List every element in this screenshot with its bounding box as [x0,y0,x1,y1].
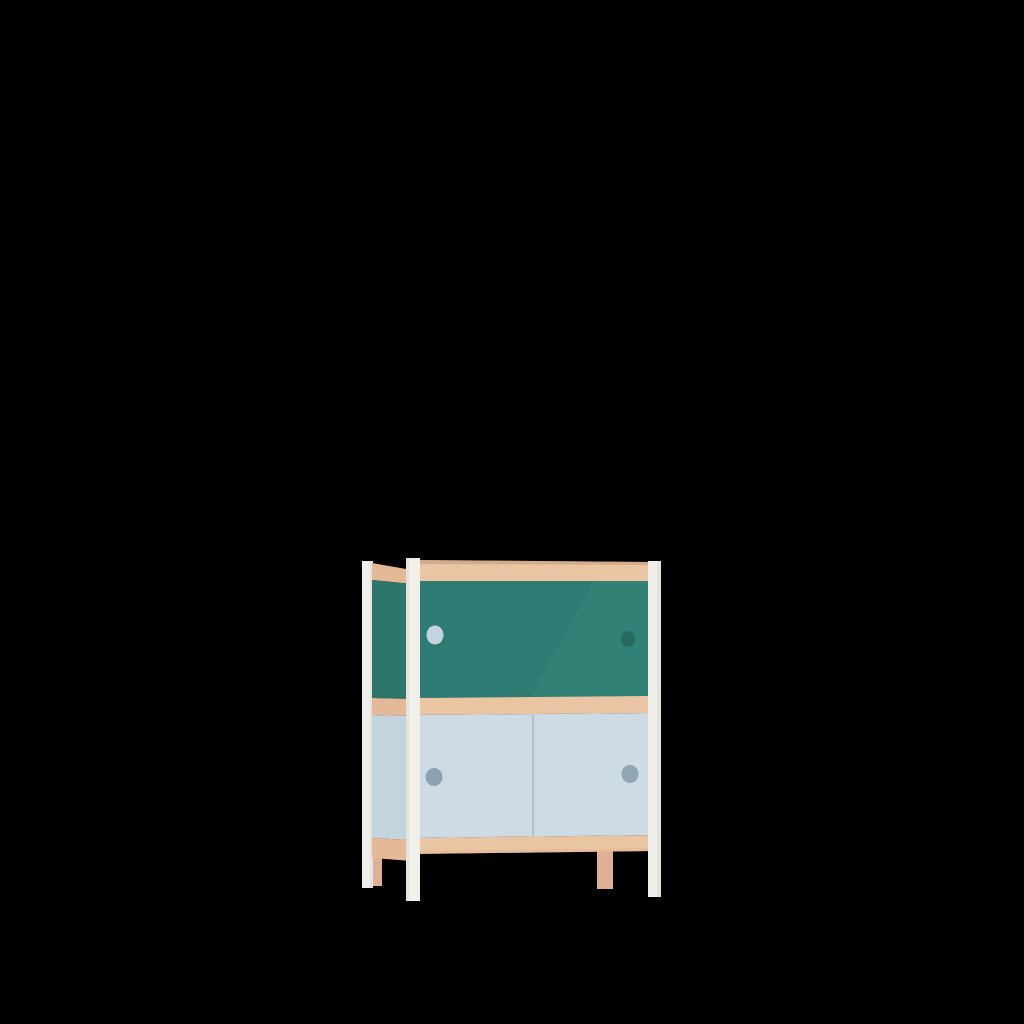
lower-left-door-handle [426,768,443,786]
black-background [0,0,1024,1024]
back-left-leg-wood-sliver [373,855,382,886]
back-right-leg-wood [597,848,613,889]
front-middle-rail [414,696,652,715]
upper-left-door-handle [427,626,444,645]
front-left-leg-shade [406,558,409,901]
upper-right-door-handle [621,631,636,647]
cabinet [362,558,661,901]
front-right-leg-shade [657,561,661,897]
lower-right-door-handle [622,765,639,783]
background-fill [0,0,1024,1024]
cabinet-render [0,0,1024,1024]
